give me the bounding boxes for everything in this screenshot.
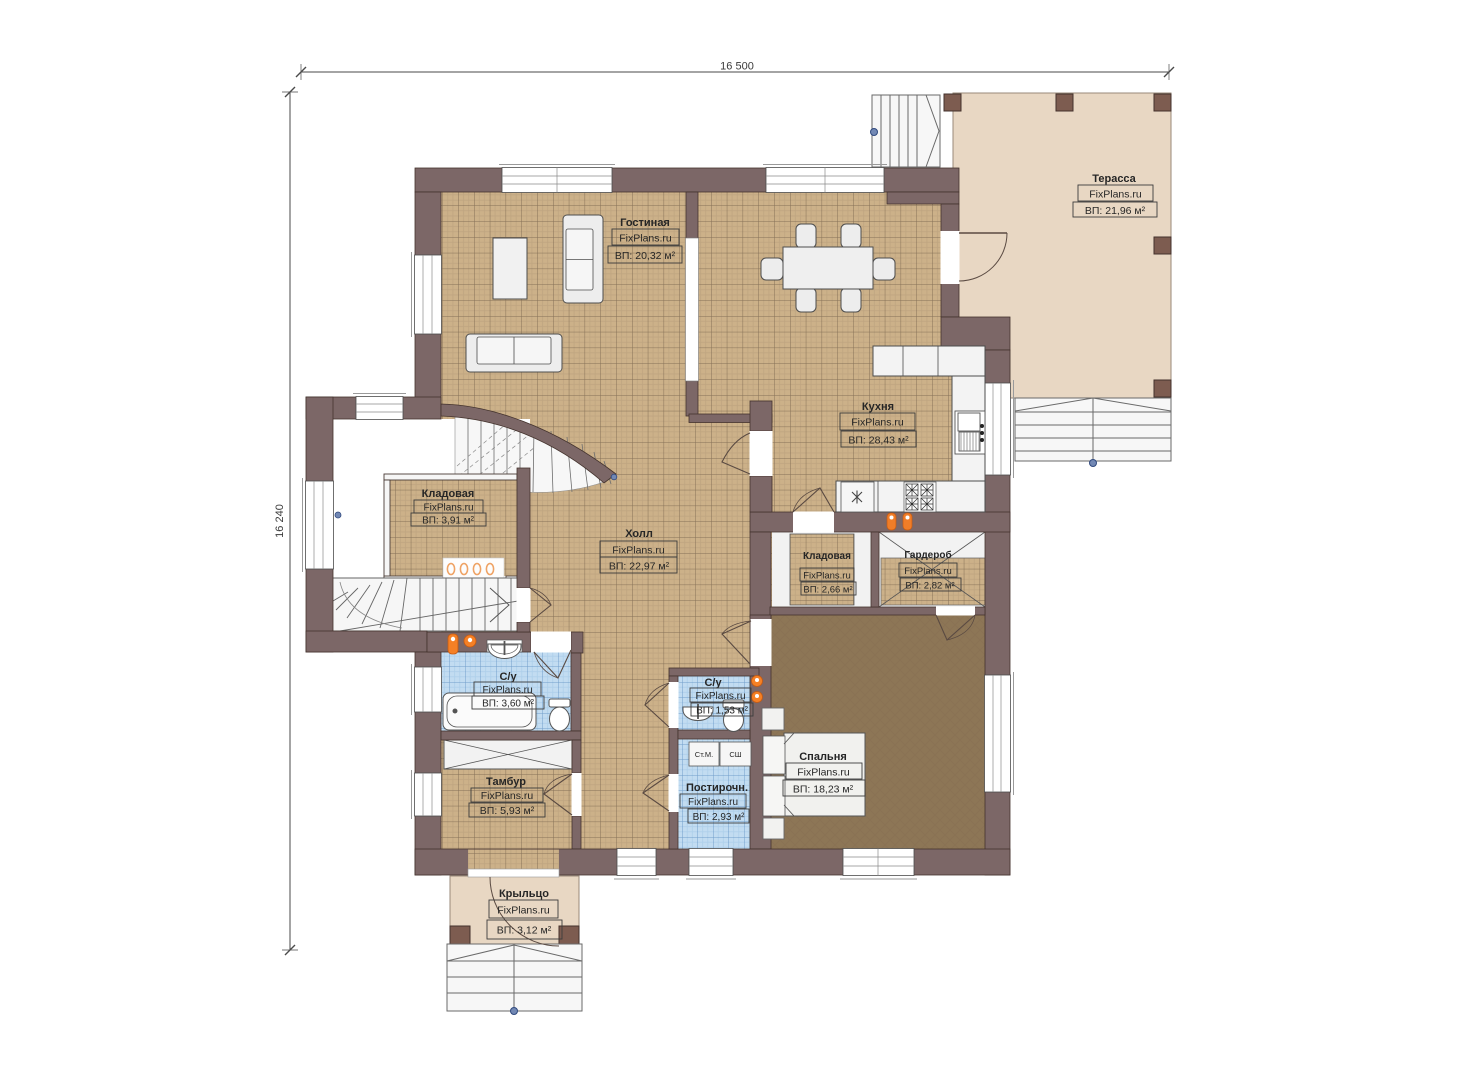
svg-text:ВП: 1,53 м²: ВП: 1,53 м²: [696, 706, 749, 717]
svg-text:СШ: СШ: [729, 750, 741, 759]
svg-text:Постирочн.: Постирочн.: [686, 782, 748, 794]
svg-text:FixPlans.ru: FixPlans.ru: [803, 571, 851, 582]
svg-text:ВП: 3,60 м²: ВП: 3,60 м²: [482, 699, 535, 710]
svg-text:FixPlans.ru: FixPlans.ru: [688, 797, 738, 808]
svg-text:Терасса: Терасса: [1092, 173, 1136, 185]
svg-text:FixPlans.ru: FixPlans.ru: [612, 545, 665, 557]
svg-text:С/у: С/у: [499, 671, 517, 683]
svg-text:FixPlans.ru: FixPlans.ru: [423, 503, 473, 514]
svg-text:FixPlans.ru: FixPlans.ru: [619, 233, 672, 245]
svg-text:ВП: 21,96 м²: ВП: 21,96 м²: [1085, 205, 1146, 217]
svg-text:ВП: 2,82 м²: ВП: 2,82 м²: [905, 581, 954, 592]
svg-text:Тамбур: Тамбур: [486, 776, 526, 788]
svg-text:FixPlans.ru: FixPlans.ru: [497, 905, 550, 917]
svg-text:ВП: 2,66 м²: ВП: 2,66 м²: [803, 585, 852, 596]
svg-text:FixPlans.ru: FixPlans.ru: [695, 691, 745, 702]
svg-text:Гостиная: Гостиная: [620, 217, 670, 229]
svg-text:FixPlans.ru: FixPlans.ru: [481, 790, 534, 802]
svg-text:ВП: 3,91 м²: ВП: 3,91 м²: [422, 516, 475, 527]
svg-text:ВП: 5,93 м²: ВП: 5,93 м²: [480, 805, 535, 817]
svg-text:FixPlans.ru: FixPlans.ru: [904, 566, 952, 577]
svg-text:ВП: 22,97 м²: ВП: 22,97 м²: [609, 561, 670, 573]
svg-text:ВП: 3,12 м²: ВП: 3,12 м²: [497, 925, 552, 937]
svg-text:Холл: Холл: [625, 528, 653, 540]
svg-text:Кладовая: Кладовая: [803, 551, 851, 562]
svg-text:ВП: 18,23 м²: ВП: 18,23 м²: [793, 784, 854, 796]
svg-text:16 240: 16 240: [274, 504, 286, 538]
svg-text:FixPlans.ru: FixPlans.ru: [851, 417, 904, 429]
svg-text:Кладовая: Кладовая: [422, 488, 475, 500]
svg-text:FixPlans.ru: FixPlans.ru: [797, 767, 850, 779]
svg-text:Кухня: Кухня: [862, 401, 894, 413]
svg-text:FixPlans.ru: FixPlans.ru: [1089, 189, 1142, 201]
svg-text:ВП: 28,43 м²: ВП: 28,43 м²: [848, 435, 909, 447]
svg-text:ВП: 2,93 м²: ВП: 2,93 м²: [693, 812, 746, 823]
svg-text:ВП: 20,32 м²: ВП: 20,32 м²: [615, 250, 676, 262]
svg-text:С/у: С/у: [704, 677, 722, 689]
svg-text:Крыльцо: Крыльцо: [499, 888, 549, 900]
svg-text:Гардероб: Гардероб: [904, 549, 951, 561]
svg-text:Спальня: Спальня: [799, 751, 847, 763]
svg-text:Ст.М.: Ст.М.: [695, 750, 713, 759]
svg-text:FixPlans.ru: FixPlans.ru: [482, 685, 532, 696]
svg-text:16 500: 16 500: [720, 61, 754, 73]
